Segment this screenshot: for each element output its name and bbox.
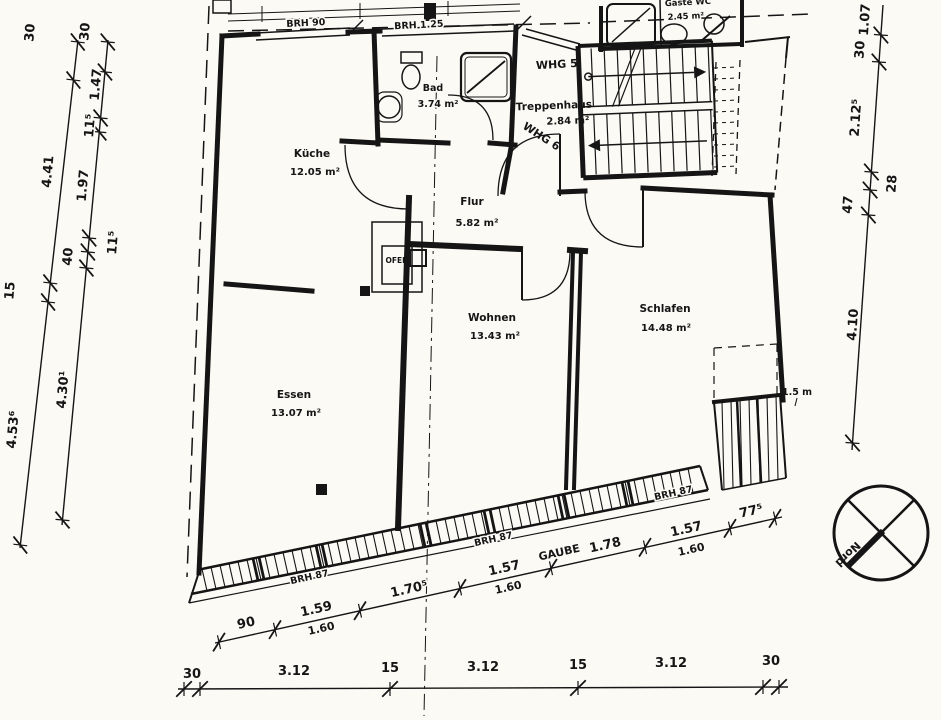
dim-label: 40 [60,247,77,266]
dim-label: 77⁵ [738,502,764,522]
room-labels: Küche 12.05 m² Essen 13.07 m² Wohnen 13.… [271,0,711,419]
post [316,484,327,495]
room-area-bad: 3.74 m² [418,99,459,110]
thin-walls-windows [256,0,790,58]
dim-label: 3.12 [278,664,310,679]
door-wohnen [522,251,570,300]
dim-label: 1.07 [857,3,874,36]
room-label-flur: Flur [460,196,484,208]
room-label-essen: Essen [277,389,311,401]
dashed-reference-lines [187,6,812,716]
brh-125-label: BRH 1.25 [394,19,444,33]
dim-chain-right [852,5,883,450]
door-kueche [345,145,409,209]
dim-label: 1.47 [88,68,106,101]
dim-label: 1.70⁵ [389,578,429,601]
walls [199,0,783,573]
dim-label: 4.41 [40,155,58,188]
toilet-icon [401,52,422,63]
wall-essen-wohnen [398,198,409,528]
dim-label: 28 [884,174,900,193]
stair-up-arrow [588,72,694,76]
room-label-kueche: Küche [294,148,330,160]
dim-label: 30 [852,40,868,59]
dim-label: 3.12 [467,660,499,675]
apartment-label-whg5: WHG 5 [536,57,578,72]
dim-label: 11⁵ [82,113,99,138]
room-label-schlafen: Schlafen [639,303,690,315]
wall-bad-left [374,31,378,144]
dim-chain-left-outer [20,40,78,548]
dim-label: 1.97 [75,169,93,202]
window-band [189,466,710,603]
dim-label: 1.57 [669,519,704,541]
clearance-label: 1.5 m [782,387,812,398]
dim-label: 15 [569,658,587,673]
dim-chain-overall [178,687,788,689]
brh-90-label: BRH 90 [286,17,326,30]
room-label-wohnen: Wohnen [468,312,516,324]
wall-wohnen-schlafen-b [574,252,581,488]
room-area-wohnen: 13.43 m² [470,331,520,342]
floor-plan-canvas: Nord Küche 12.05 m² Essen 13.07 m² Wohne… [0,0,941,720]
corner-window-strip [714,344,797,490]
stair-treads [591,44,713,175]
room-area-schlafen: 14.48 m² [641,323,691,334]
dim-label: 1.60 [494,578,524,597]
clearance-line [714,344,777,348]
room-area-essen: 13.07 m² [271,408,321,419]
dim-label: 11⁵ [105,230,122,255]
dim-label: 30 [762,654,780,669]
wall-schlafen-top [643,188,772,195]
wall-left-exterior [199,36,222,573]
staircase [578,41,717,178]
room-label-bad: Bad [423,83,443,94]
dim-label: 30 [77,22,94,41]
wall-flur-south [409,244,520,249]
dim-label: 15 [2,281,19,300]
north-compass: Nord [833,486,928,580]
dim-label: 3.12 [655,656,687,671]
gaube-label: GAUBE [537,542,581,564]
floor-plan-sheet: Nord Küche 12.05 m² Essen 13.07 m² Wohne… [0,0,941,720]
room-area-gaeste-wc: 2.45 m² [667,11,704,23]
room-label-gaeste-wc: Gäste WC [665,0,712,9]
bad-fixtures [376,52,511,122]
room-area-flur: 5.82 m² [456,218,499,229]
dim-chain-left-inner [62,40,108,525]
dim-label: 30 [22,23,39,42]
wall-schlafen-right [770,195,783,400]
dim-label: 30 [183,667,201,682]
dim-label: 4.30¹ [54,370,72,409]
upper-storey-cut-lines [213,0,520,22]
room-area-treppenhaus: 2.84 m² [546,115,589,127]
dim-label: 4.10 [845,308,862,341]
section-axis-line [424,56,437,716]
dim-label: 2.12⁵ [848,98,866,137]
dim-label: 4.53⁶ [4,410,22,449]
dim-label: 47 [840,195,856,214]
door-schlafen [585,191,643,247]
ofen-label: OFEN [386,256,409,265]
dim-label: 1.60 [677,540,707,559]
dim-label: 90 [236,614,257,633]
room-area-kueche: 12.05 m² [290,167,340,178]
dim-label: 15 [381,661,399,676]
door-swings [345,95,643,300]
stair-down-arrow [600,141,707,145]
ofen-and-posts [316,222,426,495]
wall-wohnen-schlafen-a [566,252,573,488]
wall-kueche-essen-stub [226,284,312,291]
